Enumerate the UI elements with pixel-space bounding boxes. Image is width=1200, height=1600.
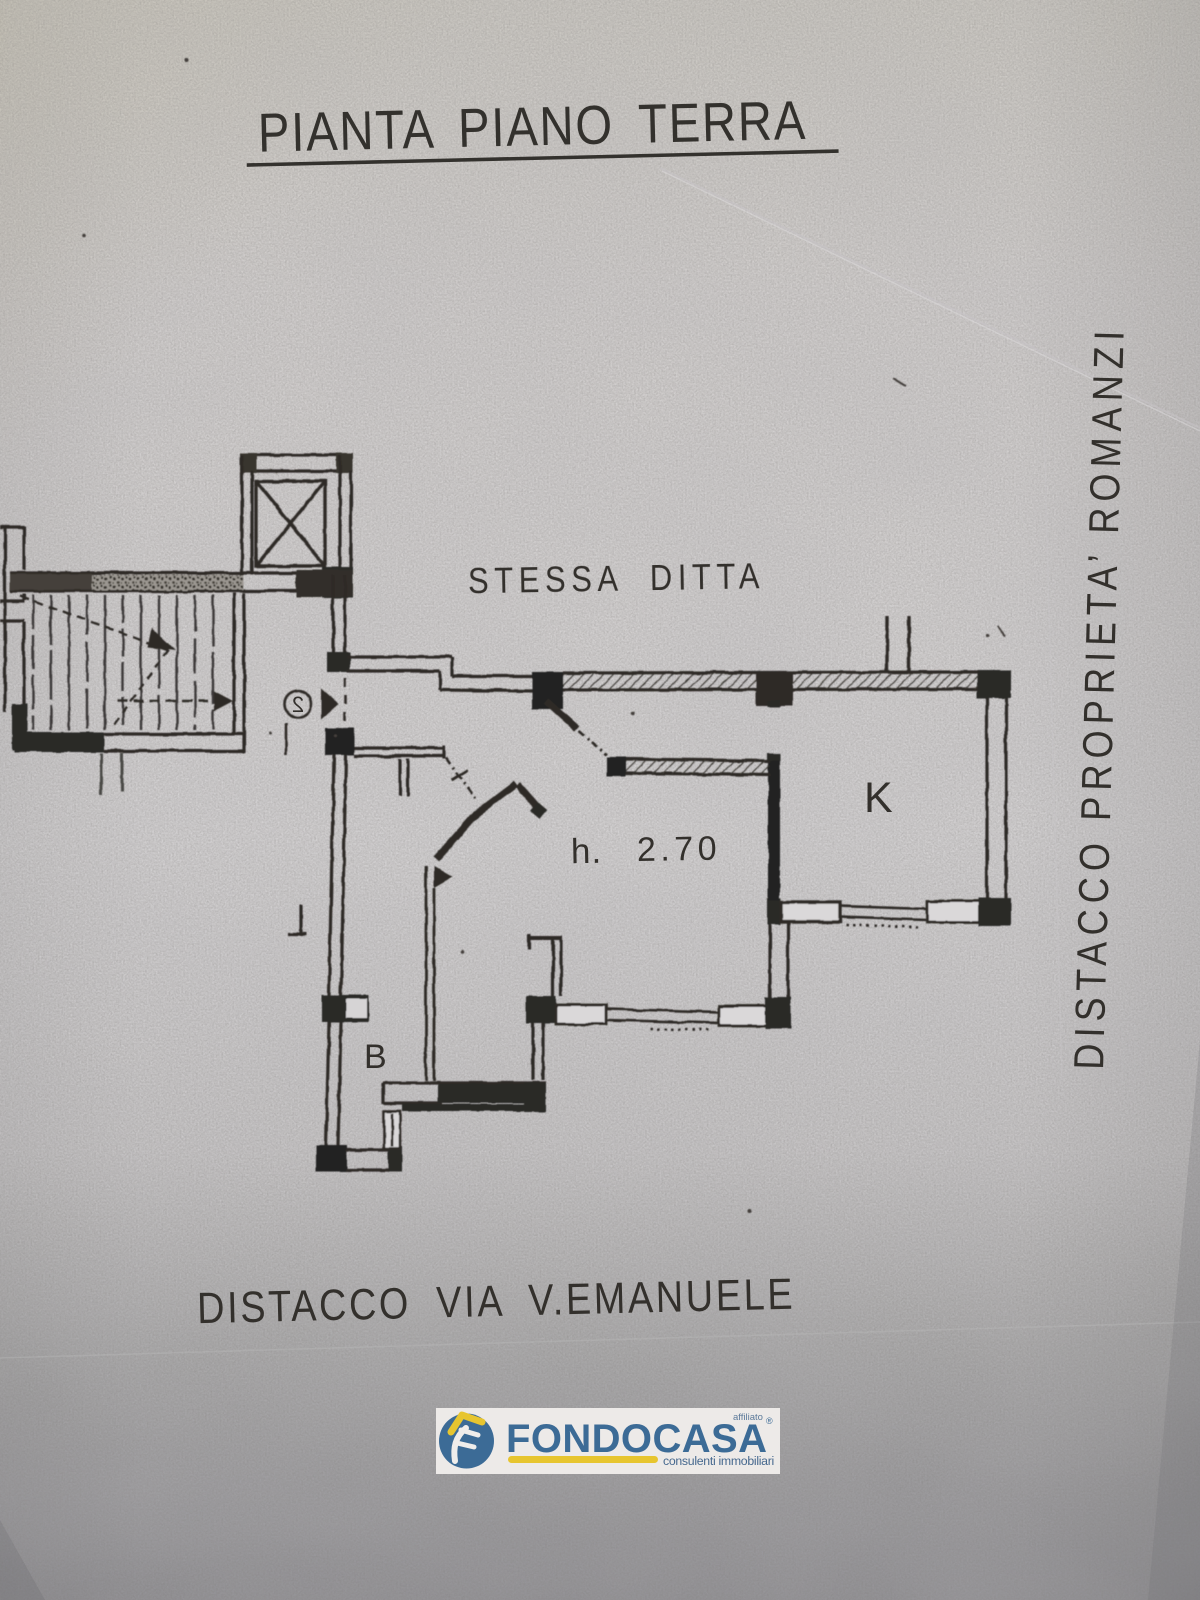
- svg-text:2: 2: [292, 692, 304, 717]
- svg-text:STESSA DITTA: STESSA DITTA: [468, 557, 766, 602]
- svg-text:2.70: 2.70: [637, 830, 722, 869]
- svg-text:affiliato: affiliato: [733, 1412, 763, 1423]
- svg-text:h.: h.: [571, 832, 603, 872]
- svg-text:B: B: [364, 1038, 387, 1076]
- svg-text:K: K: [864, 774, 893, 822]
- svg-text:consulenti immobiliari: consulenti immobiliari: [663, 1454, 774, 1468]
- svg-text:®: ®: [766, 1416, 773, 1426]
